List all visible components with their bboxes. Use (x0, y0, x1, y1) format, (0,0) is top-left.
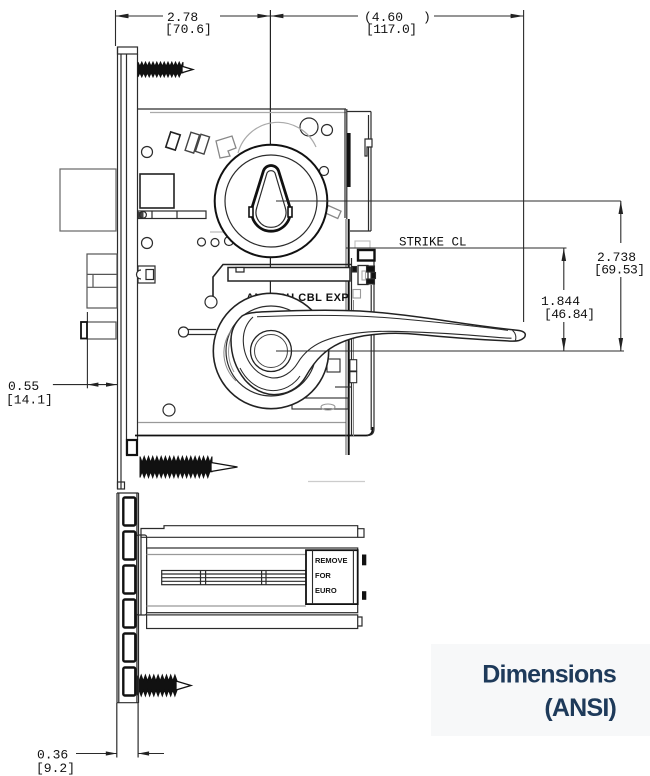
svg-text:[14.1]: [14.1] (6, 393, 53, 408)
svg-text:[70.6]: [70.6] (165, 22, 212, 37)
svg-text:FOR: FOR (315, 571, 331, 580)
svg-text:[46.84]: [46.84] (544, 307, 594, 322)
svg-text:[117.0]: [117.0] (366, 22, 416, 37)
svg-text:[69.53]: [69.53] (594, 263, 644, 278)
svg-text:REMOVE: REMOVE (315, 556, 348, 565)
svg-text:[9.2]: [9.2] (36, 761, 75, 776)
svg-text:STRIKE CL: STRIKE CL (399, 236, 467, 250)
svg-text:EURO: EURO (315, 586, 337, 595)
svg-text:): ) (423, 10, 431, 25)
svg-text:Dimensions: Dimensions (482, 661, 616, 689)
svg-text:(ANSI): (ANSI) (544, 694, 616, 722)
